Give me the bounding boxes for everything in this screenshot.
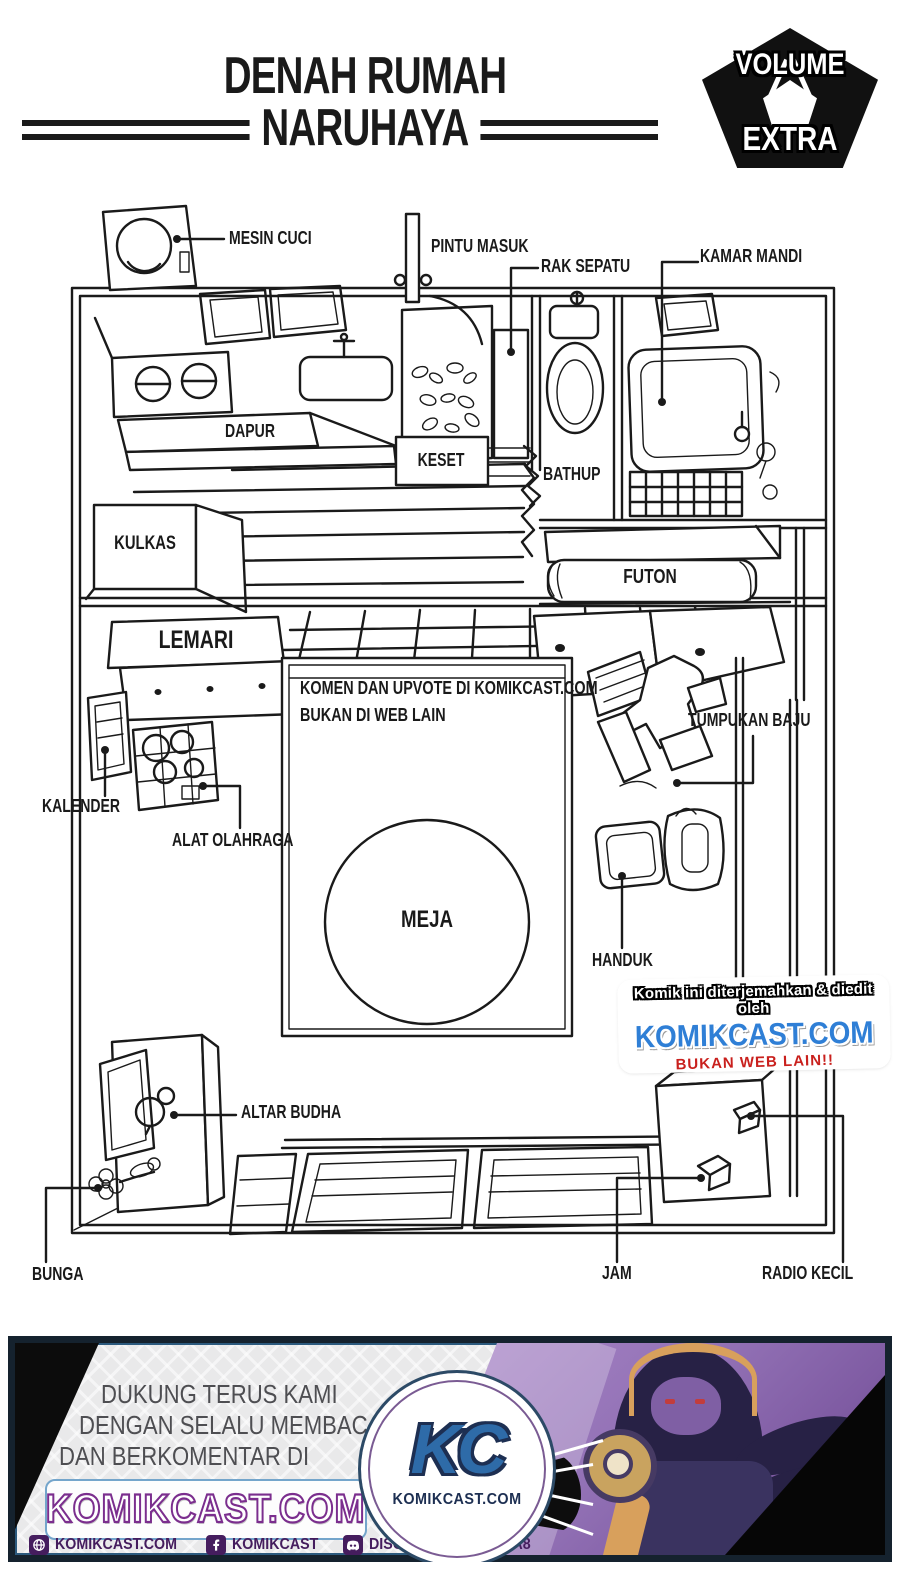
sports-basket: [133, 722, 240, 828]
badge-volume-text: VOLUME: [715, 48, 865, 82]
kitchen-windows: [200, 286, 346, 344]
watermark-credit-text: Komik ini diterjemahkan & diedit oleh: [619, 980, 888, 1020]
label-rak-sepatu: RAK SEPATU: [541, 256, 630, 277]
promo-banner: DUKUNG TERUS KAMI DENGAN SELALU MEMBACA …: [8, 1336, 892, 1562]
megaphone-center: [603, 1449, 633, 1479]
label-altar-budha: ALTAR BUDHA: [241, 1102, 341, 1123]
globe-icon: [29, 1535, 49, 1555]
footer-website-label[interactable]: KOMIKCAST.COM: [55, 1536, 177, 1554]
footer-item-facebook[interactable]: KOMIKCAST: [206, 1535, 326, 1555]
calendar: [88, 692, 131, 796]
label-mesin-cuci: MESIN CUCI: [229, 228, 312, 249]
kc-logo-badge: KC KOMIKCAST.COM: [358, 1370, 556, 1562]
page-title-line2: NARUHAYA: [95, 98, 635, 158]
room-note-line1: KOMEN DAN UPVOTE DI KOMIKCAST.COM: [300, 678, 598, 699]
entrance-door: [395, 214, 482, 344]
page-title-line1: DENAH RUMAH: [95, 46, 635, 106]
label-futon: FUTON: [623, 566, 676, 589]
watermark-site-text: KOMIKCAST.COM: [633, 1014, 875, 1055]
megaphone-icon: [583, 1429, 657, 1503]
label-keset: KESET: [418, 450, 465, 471]
label-lemari: LEMARI: [159, 626, 234, 655]
toilet: [532, 292, 622, 520]
girl-face: [651, 1377, 721, 1435]
discord-icon: [343, 1535, 363, 1555]
label-meja: MEJA: [401, 906, 453, 934]
label-pintu-masuk: PINTU MASUK: [431, 236, 529, 257]
label-radio-kecil: RADIO KECIL: [762, 1263, 853, 1284]
room-note-line2: BUKAN DI WEB LAIN: [300, 705, 446, 726]
scanlator-watermark: Komik ini diterjemahkan & diedit oleh KO…: [619, 976, 889, 1072]
support-text-line3: DAN BERKOMENTAR DI: [59, 1441, 309, 1472]
towels-bag: [595, 808, 724, 948]
buddhist-altar: [100, 1035, 236, 1212]
label-kamar-mandi: KAMAR MANDI: [700, 246, 802, 267]
facebook-icon: [206, 1535, 226, 1555]
label-dapur: DAPUR: [225, 421, 275, 442]
badge-extra-text: EXTRA: [715, 120, 865, 158]
site-url-text[interactable]: KOMIKCAST.COM: [46, 1487, 366, 1532]
fridge: [86, 505, 246, 612]
label-alat-olahraga: ALAT OLAHRAGA: [172, 830, 293, 851]
label-kalender: KALENDER: [42, 796, 120, 817]
support-text-line2: DENGAN SELALU MEMBACA: [79, 1410, 382, 1441]
label-kulkas: KULKAS: [114, 533, 176, 555]
footer-item-website[interactable]: KOMIKCAST.COM: [29, 1535, 188, 1555]
volume-extra-badge: VOLUME EXTRA: [702, 28, 878, 168]
label-handuk: HANDUK: [592, 950, 653, 971]
page-title-line2-text: NARUHAYA: [250, 99, 481, 157]
label-bunga: BUNGA: [32, 1264, 83, 1285]
bathroom-tiles: [630, 472, 742, 516]
manga-page: DENAH RUMAH NARUHAYA VOLUME EXTRA: [0, 0, 900, 1580]
kc-logo-caption: KOMIKCAST.COM: [371, 1491, 544, 1509]
girl-eye-left: [665, 1399, 675, 1404]
footer-facebook-label[interactable]: KOMIKCAST: [232, 1536, 318, 1554]
girl-eye-right: [695, 1399, 705, 1404]
kc-logo-text: KC: [361, 1409, 553, 1489]
label-tumpukan-baju: TUMPUKAN BAJU: [688, 710, 810, 731]
site-url-box[interactable]: KOMIKCAST.COM: [45, 1479, 367, 1540]
kitchen-sink: [300, 334, 392, 400]
floor-plan-drawing: [0, 0, 900, 1320]
label-bathup: BATHUP: [543, 464, 600, 485]
label-jam: JAM: [602, 1263, 632, 1284]
washing-machine: [103, 206, 224, 290]
support-text-line1: DUKUNG TERUS KAMI: [101, 1379, 338, 1410]
